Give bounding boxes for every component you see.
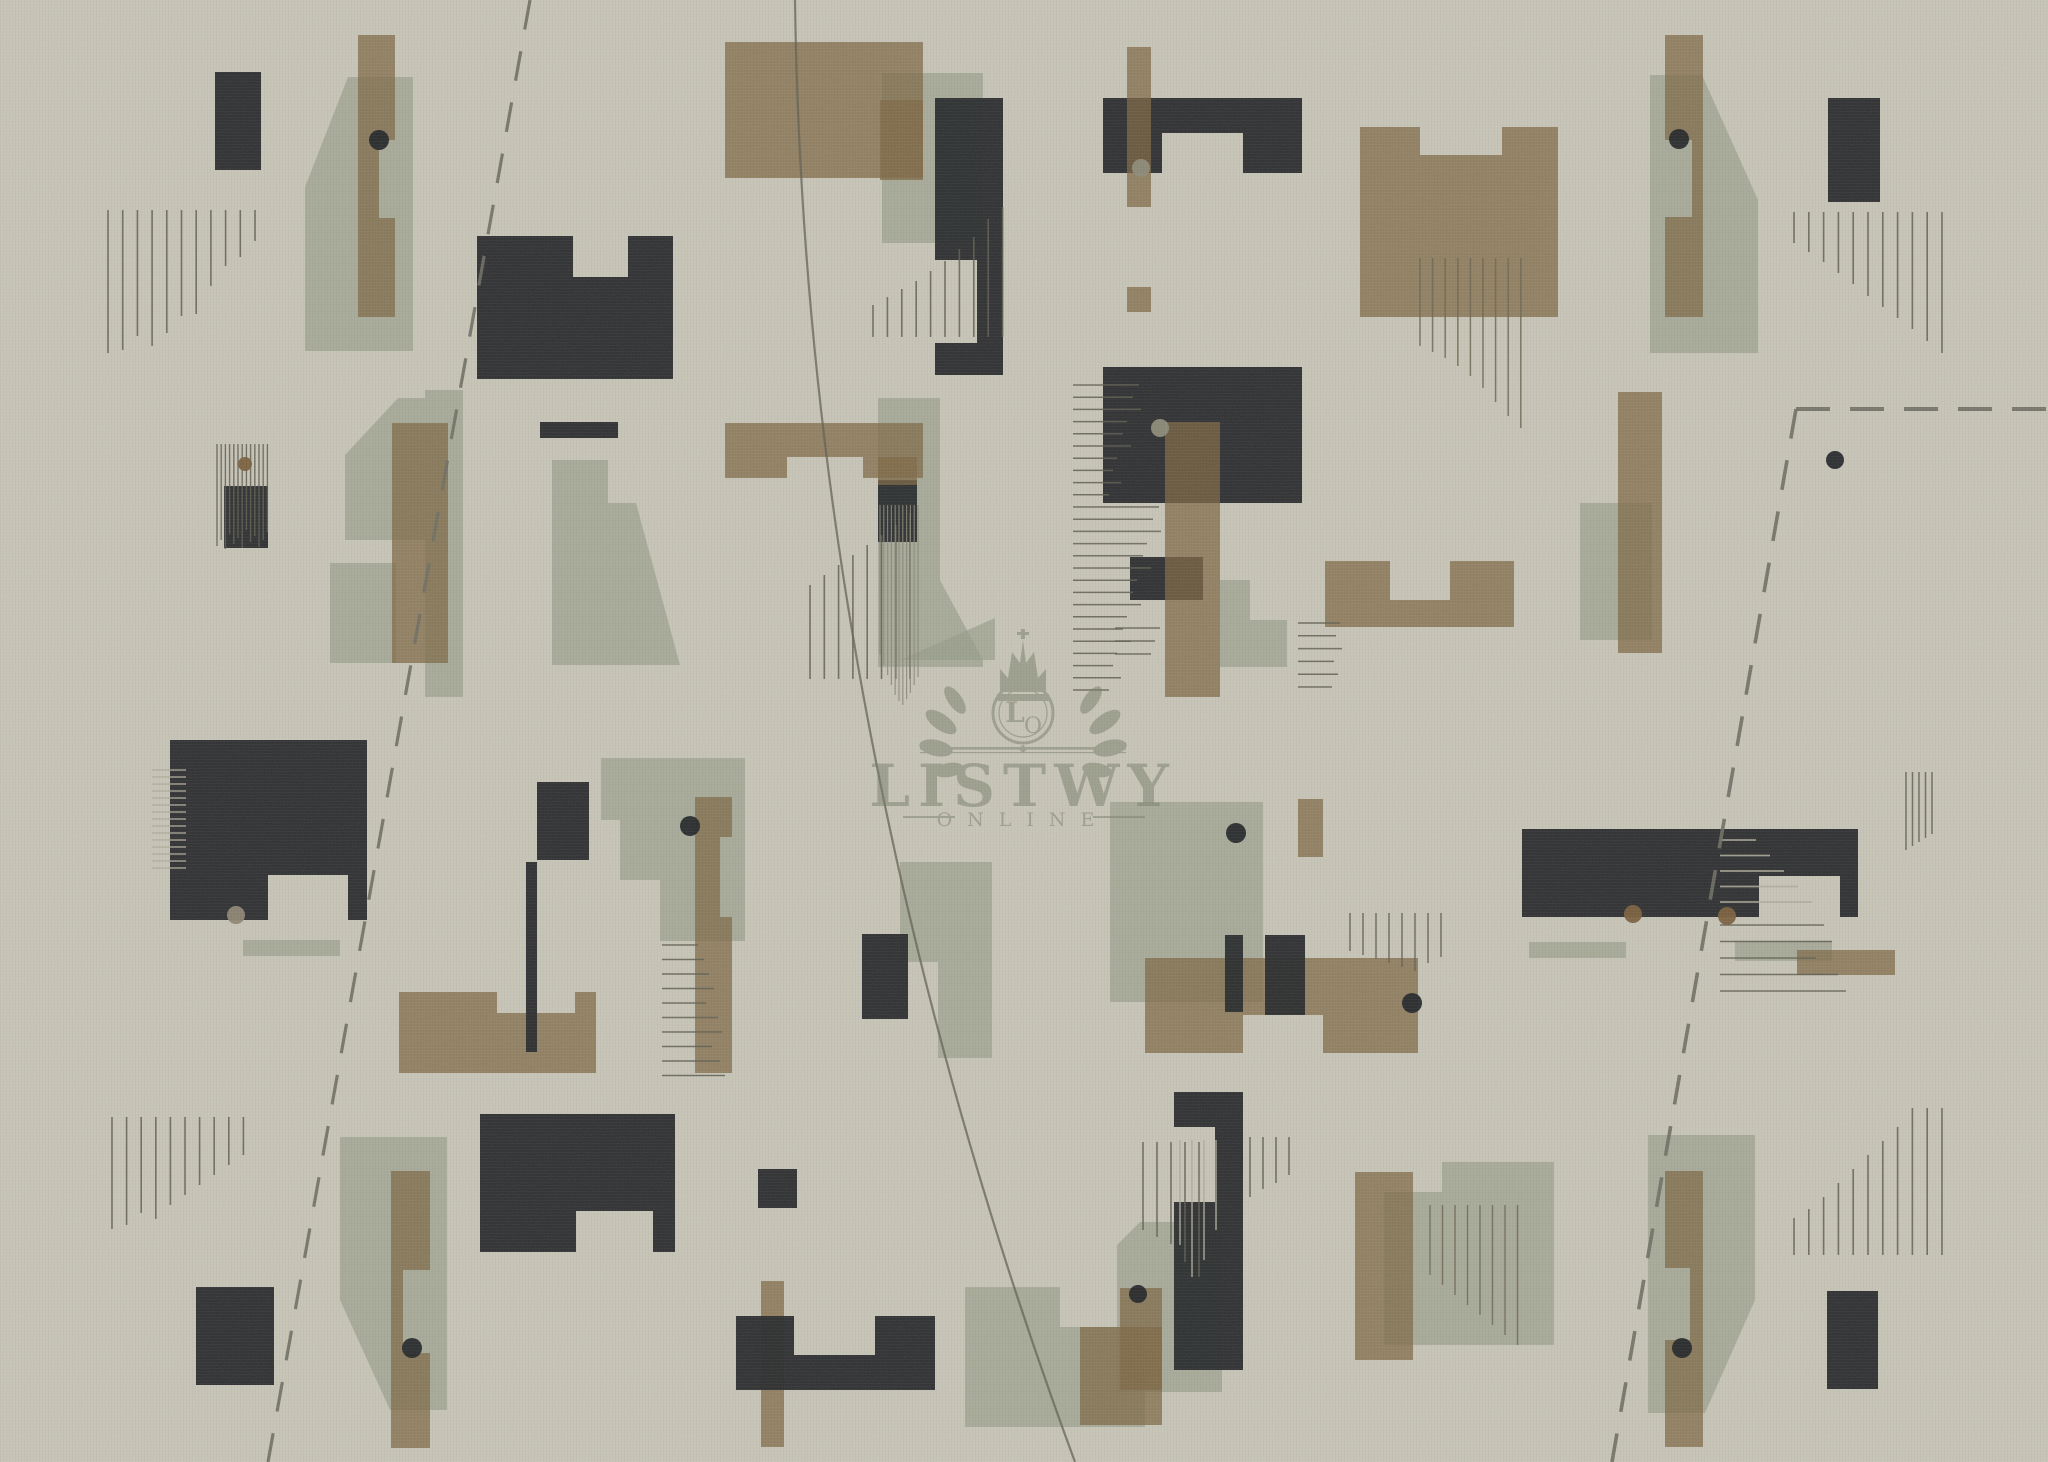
artwork-canvas: L O LISTWY ONLINE <box>0 0 2048 1462</box>
grain-texture <box>0 0 2048 1462</box>
abstract-pattern-artwork: L O LISTWY ONLINE <box>0 0 2048 1462</box>
